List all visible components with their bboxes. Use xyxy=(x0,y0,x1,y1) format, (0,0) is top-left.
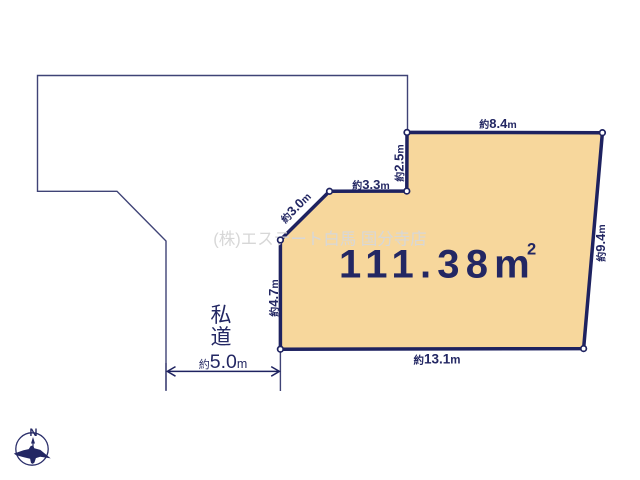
svg-text:道: 道 xyxy=(211,326,232,349)
svg-text:約13.1m: 約13.1m xyxy=(413,352,460,367)
svg-text:2: 2 xyxy=(527,241,536,259)
svg-text:私: 私 xyxy=(211,304,232,327)
svg-text:N: N xyxy=(30,427,38,439)
svg-text:111.38m: 111.38m xyxy=(339,243,536,287)
